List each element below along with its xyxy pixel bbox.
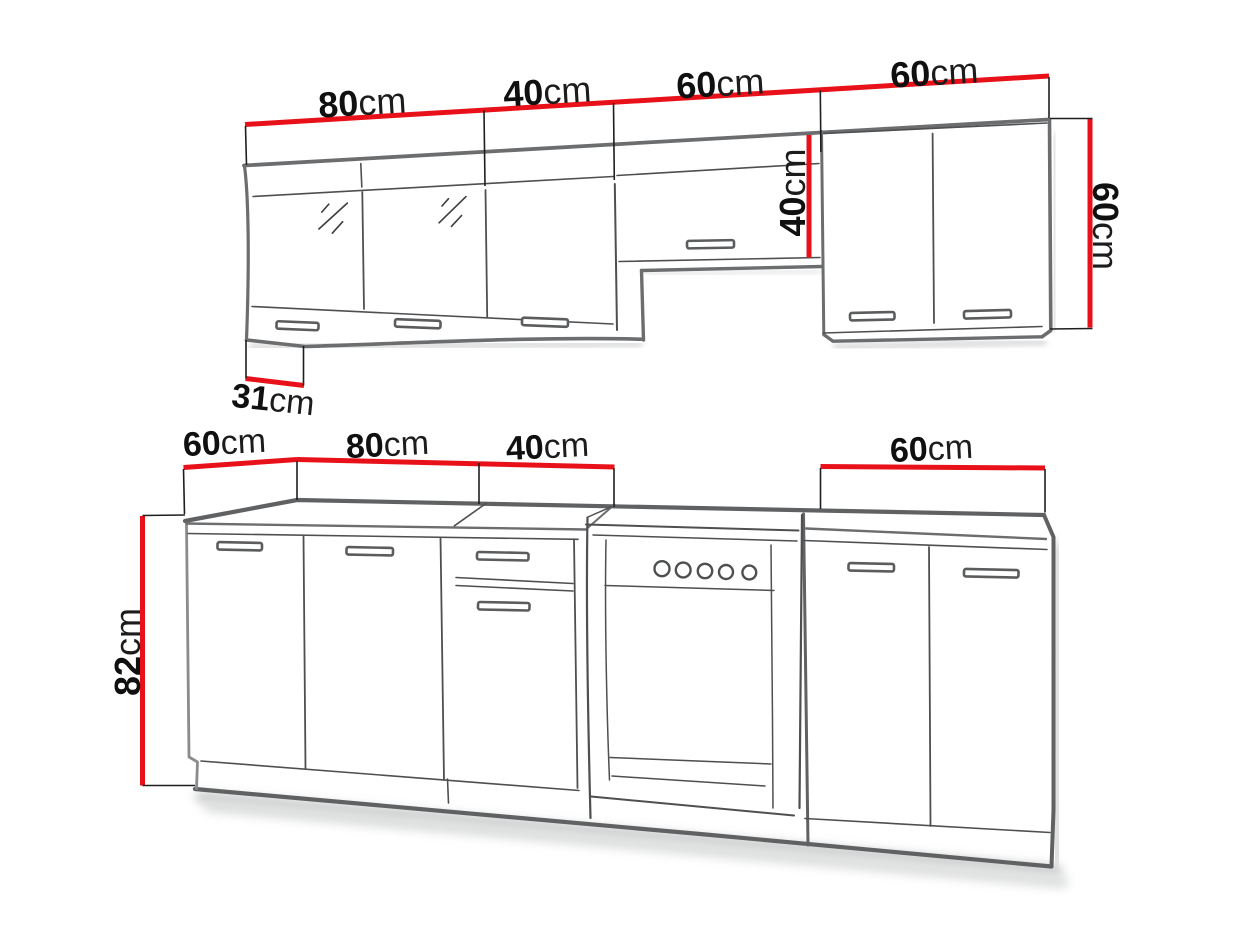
svg-text:40cm: 40cm	[505, 426, 590, 468]
svg-text:60cm: 60cm	[182, 422, 267, 464]
svg-text:60cm: 60cm	[889, 49, 979, 95]
svg-text:40cm: 40cm	[502, 68, 592, 114]
svg-text:40cm: 40cm	[772, 148, 813, 236]
svg-text:80cm: 80cm	[345, 424, 430, 466]
svg-text:80cm: 80cm	[317, 79, 407, 125]
svg-text:60cm: 60cm	[675, 60, 765, 106]
svg-text:60cm: 60cm	[889, 428, 974, 470]
svg-text:60cm: 60cm	[1085, 182, 1126, 270]
svg-text:82cm: 82cm	[107, 608, 148, 696]
